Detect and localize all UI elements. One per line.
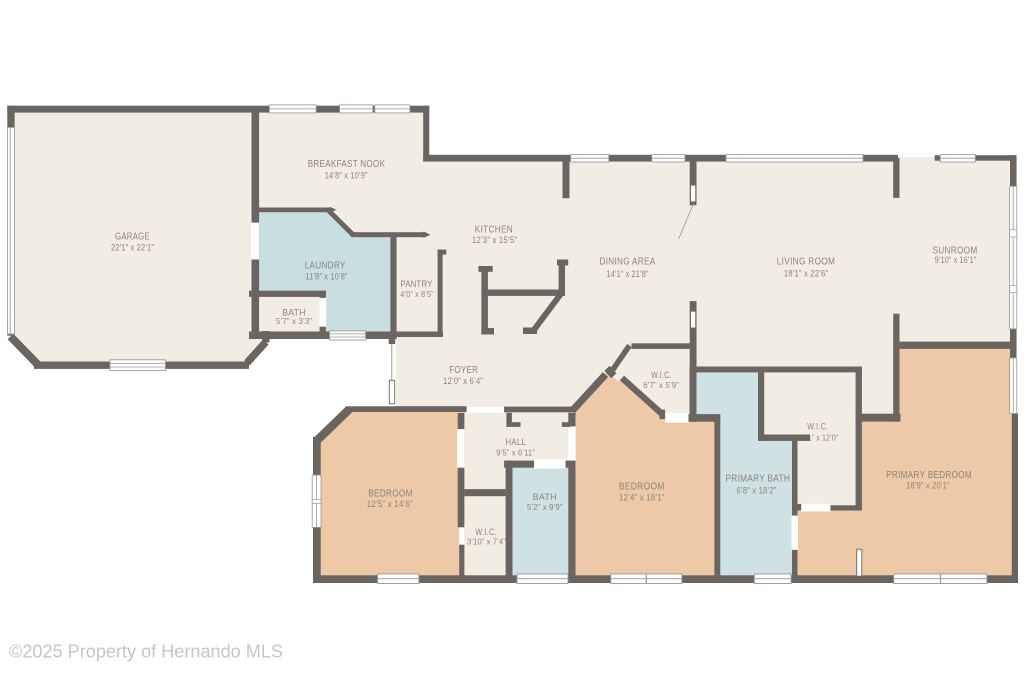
svg-text:5’2” x 9’9”: 5’2” x 9’9” xyxy=(527,502,563,512)
svg-text:PRIMARY BATH: PRIMARY BATH xyxy=(726,473,791,484)
svg-text:W.I.C.: W.I.C. xyxy=(475,527,496,537)
svg-text:BEDROOM: BEDROOM xyxy=(619,481,665,492)
svg-text:6’7” x 5’9”: 6’7” x 5’9” xyxy=(643,380,679,390)
svg-text:GARAGE: GARAGE xyxy=(115,232,150,243)
svg-text:LAUNDRY: LAUNDRY xyxy=(305,260,346,271)
svg-text:11’8” x 10’8”: 11’8” x 10’8” xyxy=(305,272,347,282)
svg-text:18’9” x 20’1”: 18’9” x 20’1” xyxy=(906,481,950,491)
svg-text:12’0” x 6’4”: 12’0” x 6’4” xyxy=(443,376,483,386)
svg-text:12’5” x 14’6”: 12’5” x 14’6” xyxy=(367,499,413,509)
svg-text:HALL: HALL xyxy=(506,437,527,447)
svg-text:5’7” x 3’3”: 5’7” x 3’3” xyxy=(276,316,312,326)
svg-text:DINING AREA: DINING AREA xyxy=(600,256,656,267)
svg-text:KITCHEN: KITCHEN xyxy=(475,225,513,236)
svg-text:LIVING ROOM: LIVING ROOM xyxy=(777,256,836,267)
svg-text:©2025 Property of Hernando MLS: ©2025 Property of Hernando MLS xyxy=(9,642,283,662)
svg-text:12’4” x 18’1”: 12’4” x 18’1” xyxy=(619,493,665,503)
svg-text:4’0” x 8’5”: 4’0” x 8’5” xyxy=(400,289,434,299)
svg-text:12’3” x 15’5”: 12’3” x 15’5” xyxy=(472,235,517,245)
svg-text:14’8” x 10’9”: 14’8” x 10’9” xyxy=(325,170,368,180)
svg-text:9’5” x 6’11”: 9’5” x 6’11” xyxy=(496,447,535,457)
svg-text:BREAKFAST NOOK: BREAKFAST NOOK xyxy=(308,159,386,170)
svg-text:PANTRY: PANTRY xyxy=(400,279,432,289)
svg-text:W.I.C.: W.I.C. xyxy=(651,370,671,380)
svg-text:3’10” x 7’4”: 3’10” x 7’4” xyxy=(467,537,506,547)
svg-text:18’1” x 22’6”: 18’1” x 22’6” xyxy=(784,269,829,279)
svg-text:FOYER: FOYER xyxy=(449,365,478,376)
svg-text:9’10” x 16’1”: 9’10” x 16’1” xyxy=(935,255,977,265)
svg-text:BATH: BATH xyxy=(533,492,557,502)
svg-text:14’1” x 21’8”: 14’1” x 21’8” xyxy=(607,269,649,279)
svg-text:6’8” x 18’2”: 6’8” x 18’2” xyxy=(737,486,777,496)
svg-text:22’1” x 22’1”: 22’1” x 22’1” xyxy=(111,242,154,252)
svg-text:W.I.C.: W.I.C. xyxy=(807,421,828,431)
